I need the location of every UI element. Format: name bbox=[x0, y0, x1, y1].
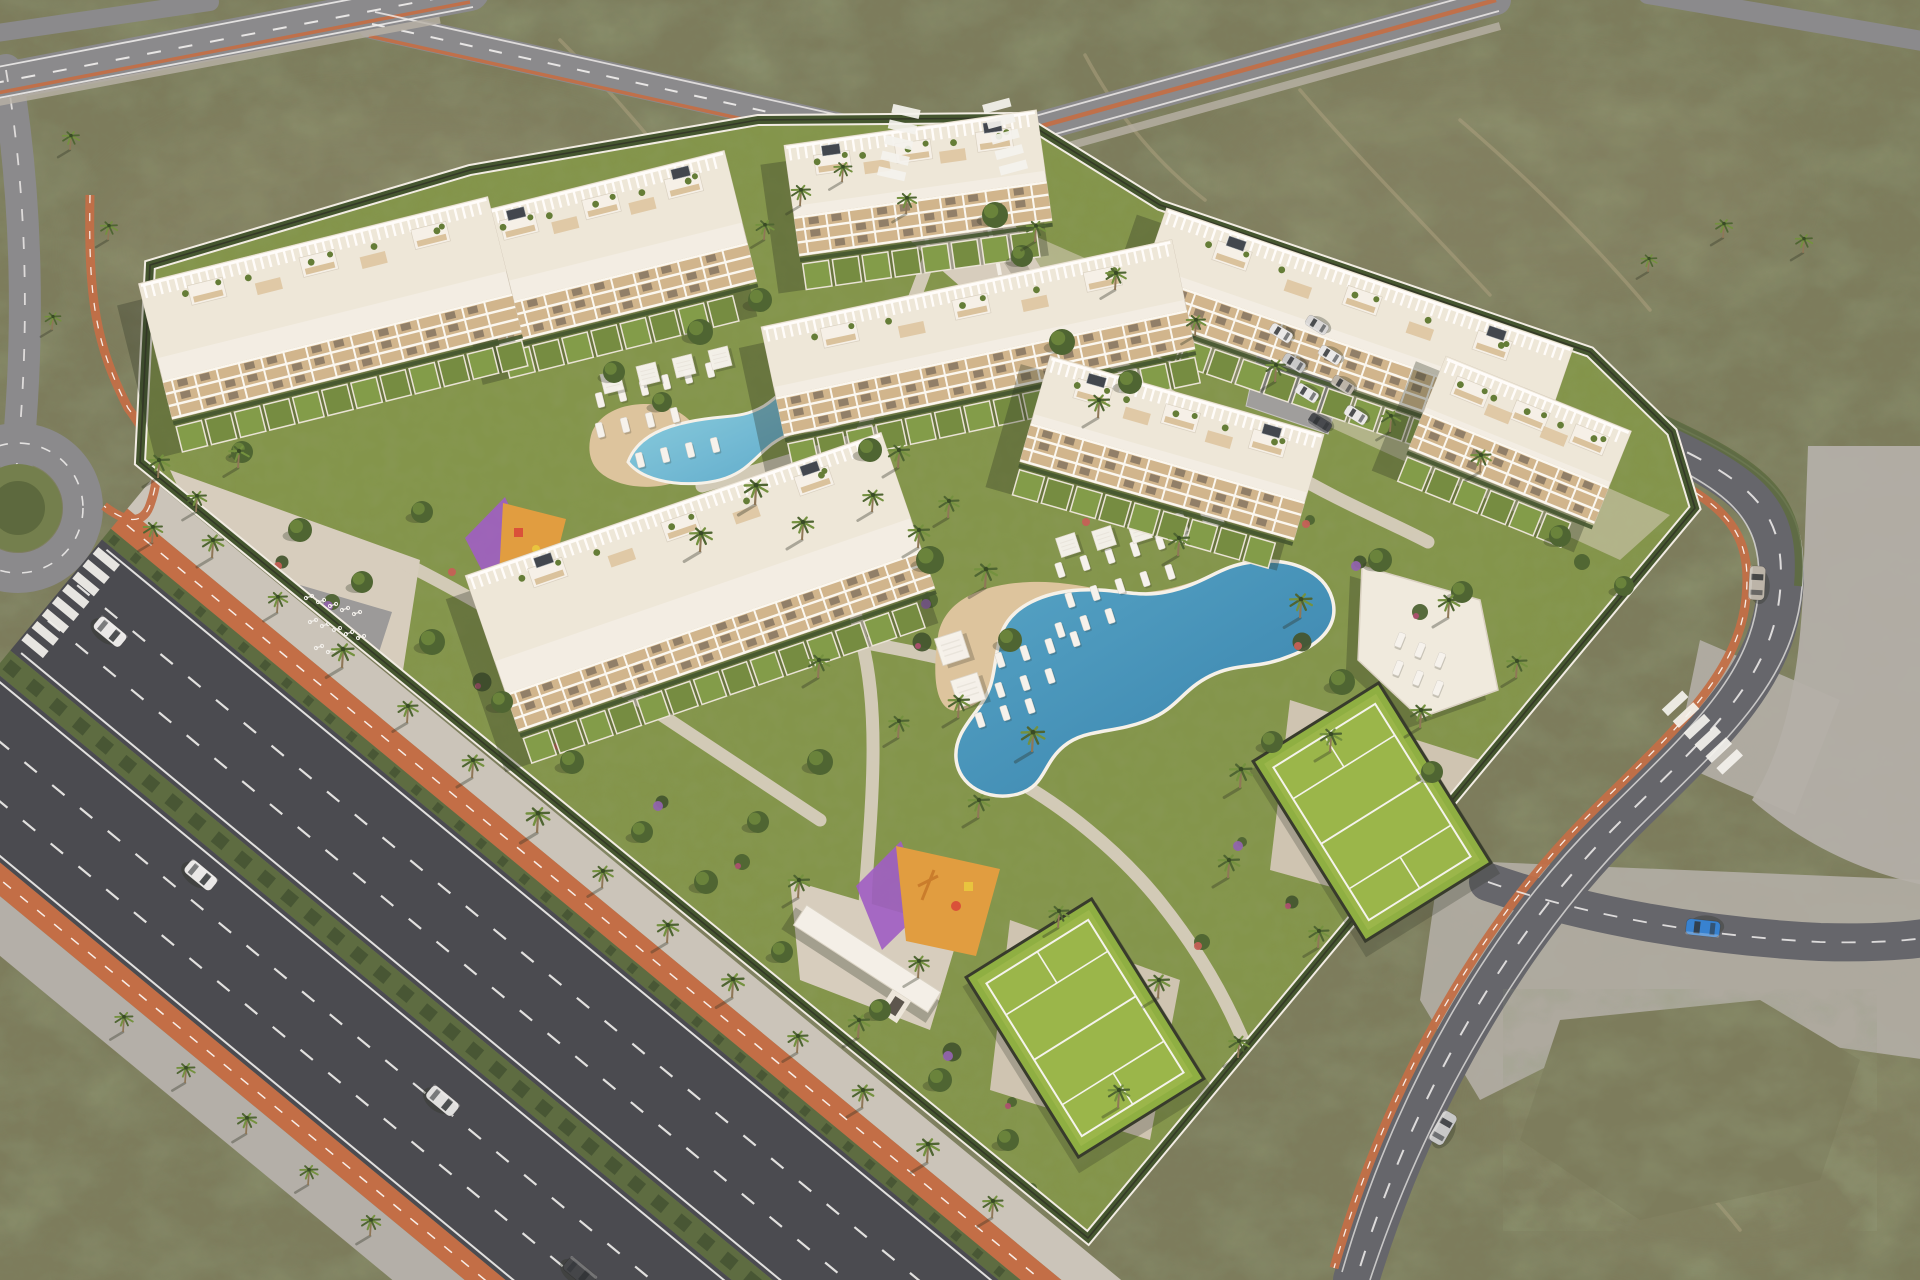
aerial-site-render bbox=[0, 0, 1920, 1280]
scene-canvas bbox=[0, 0, 1920, 1280]
warm-light-overlay bbox=[0, 0, 1920, 1280]
